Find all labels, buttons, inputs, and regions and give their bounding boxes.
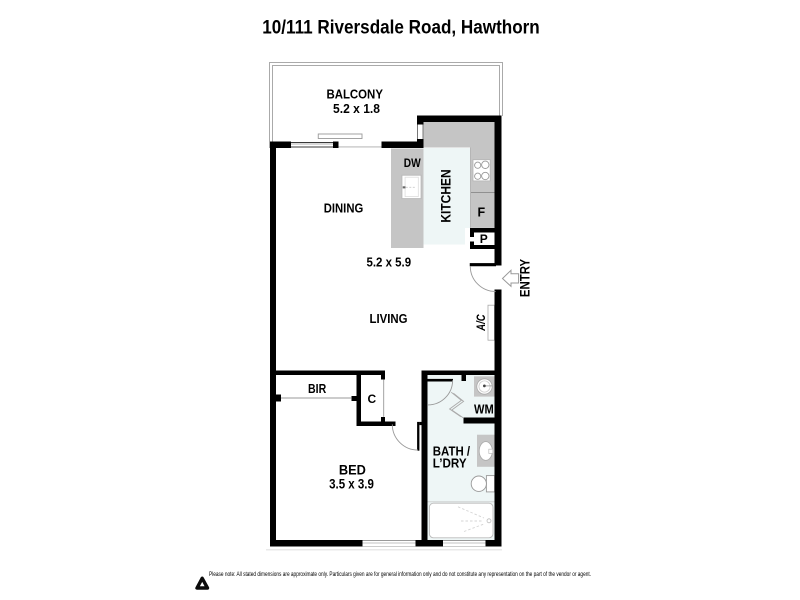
svg-text:3.5 x 3.9: 3.5 x 3.9 (329, 475, 374, 491)
svg-text:L’DRY: L’DRY (433, 456, 467, 470)
svg-text:Please note: All stated dimens: Please note: All stated dimensions are a… (209, 571, 591, 578)
svg-text:DW: DW (404, 156, 421, 170)
svg-text:F: F (477, 205, 485, 219)
svg-text:5.2 x 5.9: 5.2 x 5.9 (367, 254, 412, 269)
svg-text:KITCHEN: KITCHEN (439, 169, 454, 222)
svg-text:BIR: BIR (308, 382, 326, 396)
svg-text:C: C (367, 392, 376, 406)
svg-text:DINING: DINING (324, 201, 364, 216)
svg-text:ENTRY: ENTRY (518, 259, 533, 297)
svg-text:LIVING: LIVING (370, 311, 408, 326)
svg-text:10/111 Riversdale Road, Hawtho: 10/111 Riversdale Road, Hawthorn (262, 17, 540, 39)
svg-text:A/C: A/C (476, 314, 488, 332)
svg-text:BALCONY: BALCONY (326, 87, 383, 102)
svg-text:P: P (480, 232, 488, 246)
svg-text:WM: WM (474, 402, 494, 416)
svg-text:5.2 x 1.8: 5.2 x 1.8 (333, 101, 380, 116)
